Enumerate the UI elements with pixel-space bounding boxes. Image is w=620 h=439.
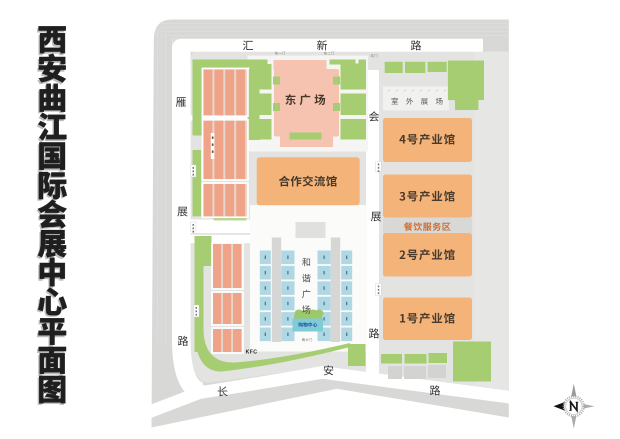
svg-text:长: 长	[217, 384, 228, 400]
svg-text:路: 路	[369, 326, 380, 342]
svg-text:合作交流馆: 合作交流馆	[279, 174, 338, 190]
svg-text:图: 图	[37, 365, 67, 409]
svg-text:展: 展	[371, 209, 382, 225]
svg-text:场: 场	[302, 302, 311, 316]
svg-text:路: 路	[411, 37, 422, 53]
svg-text:汇: 汇	[243, 37, 254, 53]
svg-text:东二门: 东二门	[324, 51, 335, 57]
svg-text:外: 外	[406, 96, 414, 107]
svg-text:路: 路	[430, 383, 441, 399]
svg-text:餐饮服务区: 餐饮服务区	[404, 220, 452, 233]
svg-text:雁: 雁	[176, 94, 187, 110]
svg-text:3号产业馆: 3号产业馆	[399, 189, 456, 205]
svg-text:4号产业馆: 4号产业馆	[399, 132, 456, 148]
svg-text:KFC: KFC	[246, 350, 258, 356]
svg-text:购物中心: 购物中心	[298, 322, 317, 329]
svg-text:2号产业馆: 2号产业馆	[399, 247, 456, 263]
svg-text:展: 展	[421, 96, 429, 107]
svg-text:北门: 北门	[370, 53, 378, 59]
svg-text:1号产业馆: 1号产业馆	[399, 311, 456, 327]
svg-text:东一门: 东一门	[275, 51, 286, 57]
svg-text:室: 室	[391, 96, 399, 107]
svg-text:安: 安	[323, 363, 334, 379]
svg-text:会: 会	[369, 109, 380, 125]
svg-text:路: 路	[178, 333, 189, 349]
svg-text:展: 展	[177, 204, 188, 220]
svg-text:谐: 谐	[302, 270, 311, 284]
svg-text:东广场: 东广场	[285, 92, 329, 108]
svg-text:南大门: 南大门	[302, 337, 313, 343]
svg-text:广: 广	[302, 286, 311, 300]
svg-text:场: 场	[435, 96, 443, 107]
svg-text:和: 和	[302, 255, 311, 269]
